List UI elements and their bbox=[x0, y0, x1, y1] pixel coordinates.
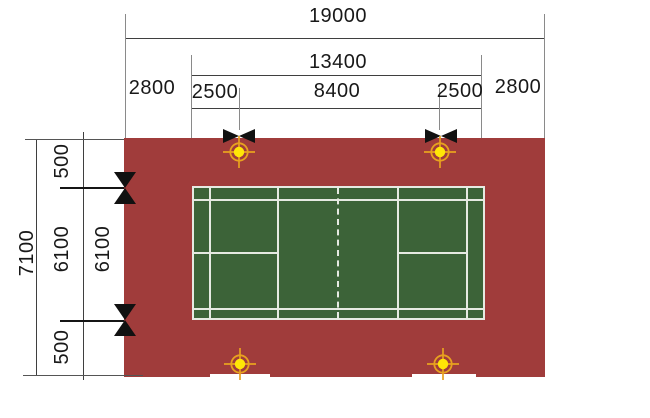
dim-line-500-6100-500 bbox=[83, 132, 84, 380]
dim-line-19000 bbox=[125, 38, 545, 39]
court-plan-drawing: 19000 13400 2800 2500 8400 2500 2800 710… bbox=[0, 0, 650, 418]
badminton-court bbox=[192, 186, 485, 320]
dim-label-500-bottom: 500 bbox=[52, 330, 72, 365]
light-post-marker-bottom-left bbox=[222, 346, 258, 382]
dim-label-2500-left: 2500 bbox=[192, 82, 239, 102]
tick-apron-bottom bbox=[23, 375, 143, 376]
dim-label-6100-inner: 6100 bbox=[93, 226, 113, 273]
dim-label-6100-outer: 6100 bbox=[52, 226, 72, 273]
tick-apron-top bbox=[25, 139, 124, 140]
dim-label-2800-right: 2800 bbox=[495, 77, 542, 97]
dim-label-13400: 13400 bbox=[309, 52, 367, 72]
edge-marker-left-top bbox=[112, 170, 138, 206]
dim-line-13400 bbox=[191, 75, 482, 76]
light-post-marker-top-left bbox=[221, 134, 257, 170]
dim-label-7100: 7100 bbox=[17, 230, 37, 277]
net-center-line bbox=[337, 188, 339, 318]
extension-line-right-outer bbox=[544, 14, 545, 138]
dim-label-8400: 8400 bbox=[314, 81, 361, 101]
edge-marker-left-bottom bbox=[112, 302, 138, 338]
center-service-line-left bbox=[194, 252, 279, 254]
center-service-line-right bbox=[397, 252, 467, 254]
extension-line-post-left bbox=[239, 88, 240, 130]
light-post-marker-top-right bbox=[422, 134, 458, 170]
extension-line-left-outer bbox=[125, 14, 126, 138]
dim-label-2800-left: 2800 bbox=[129, 78, 176, 98]
dim-label-2500-right: 2500 bbox=[437, 81, 484, 101]
light-post-marker-bottom-right bbox=[425, 346, 461, 382]
dim-label-500-top: 500 bbox=[52, 144, 72, 179]
dim-label-19000: 19000 bbox=[309, 6, 367, 26]
